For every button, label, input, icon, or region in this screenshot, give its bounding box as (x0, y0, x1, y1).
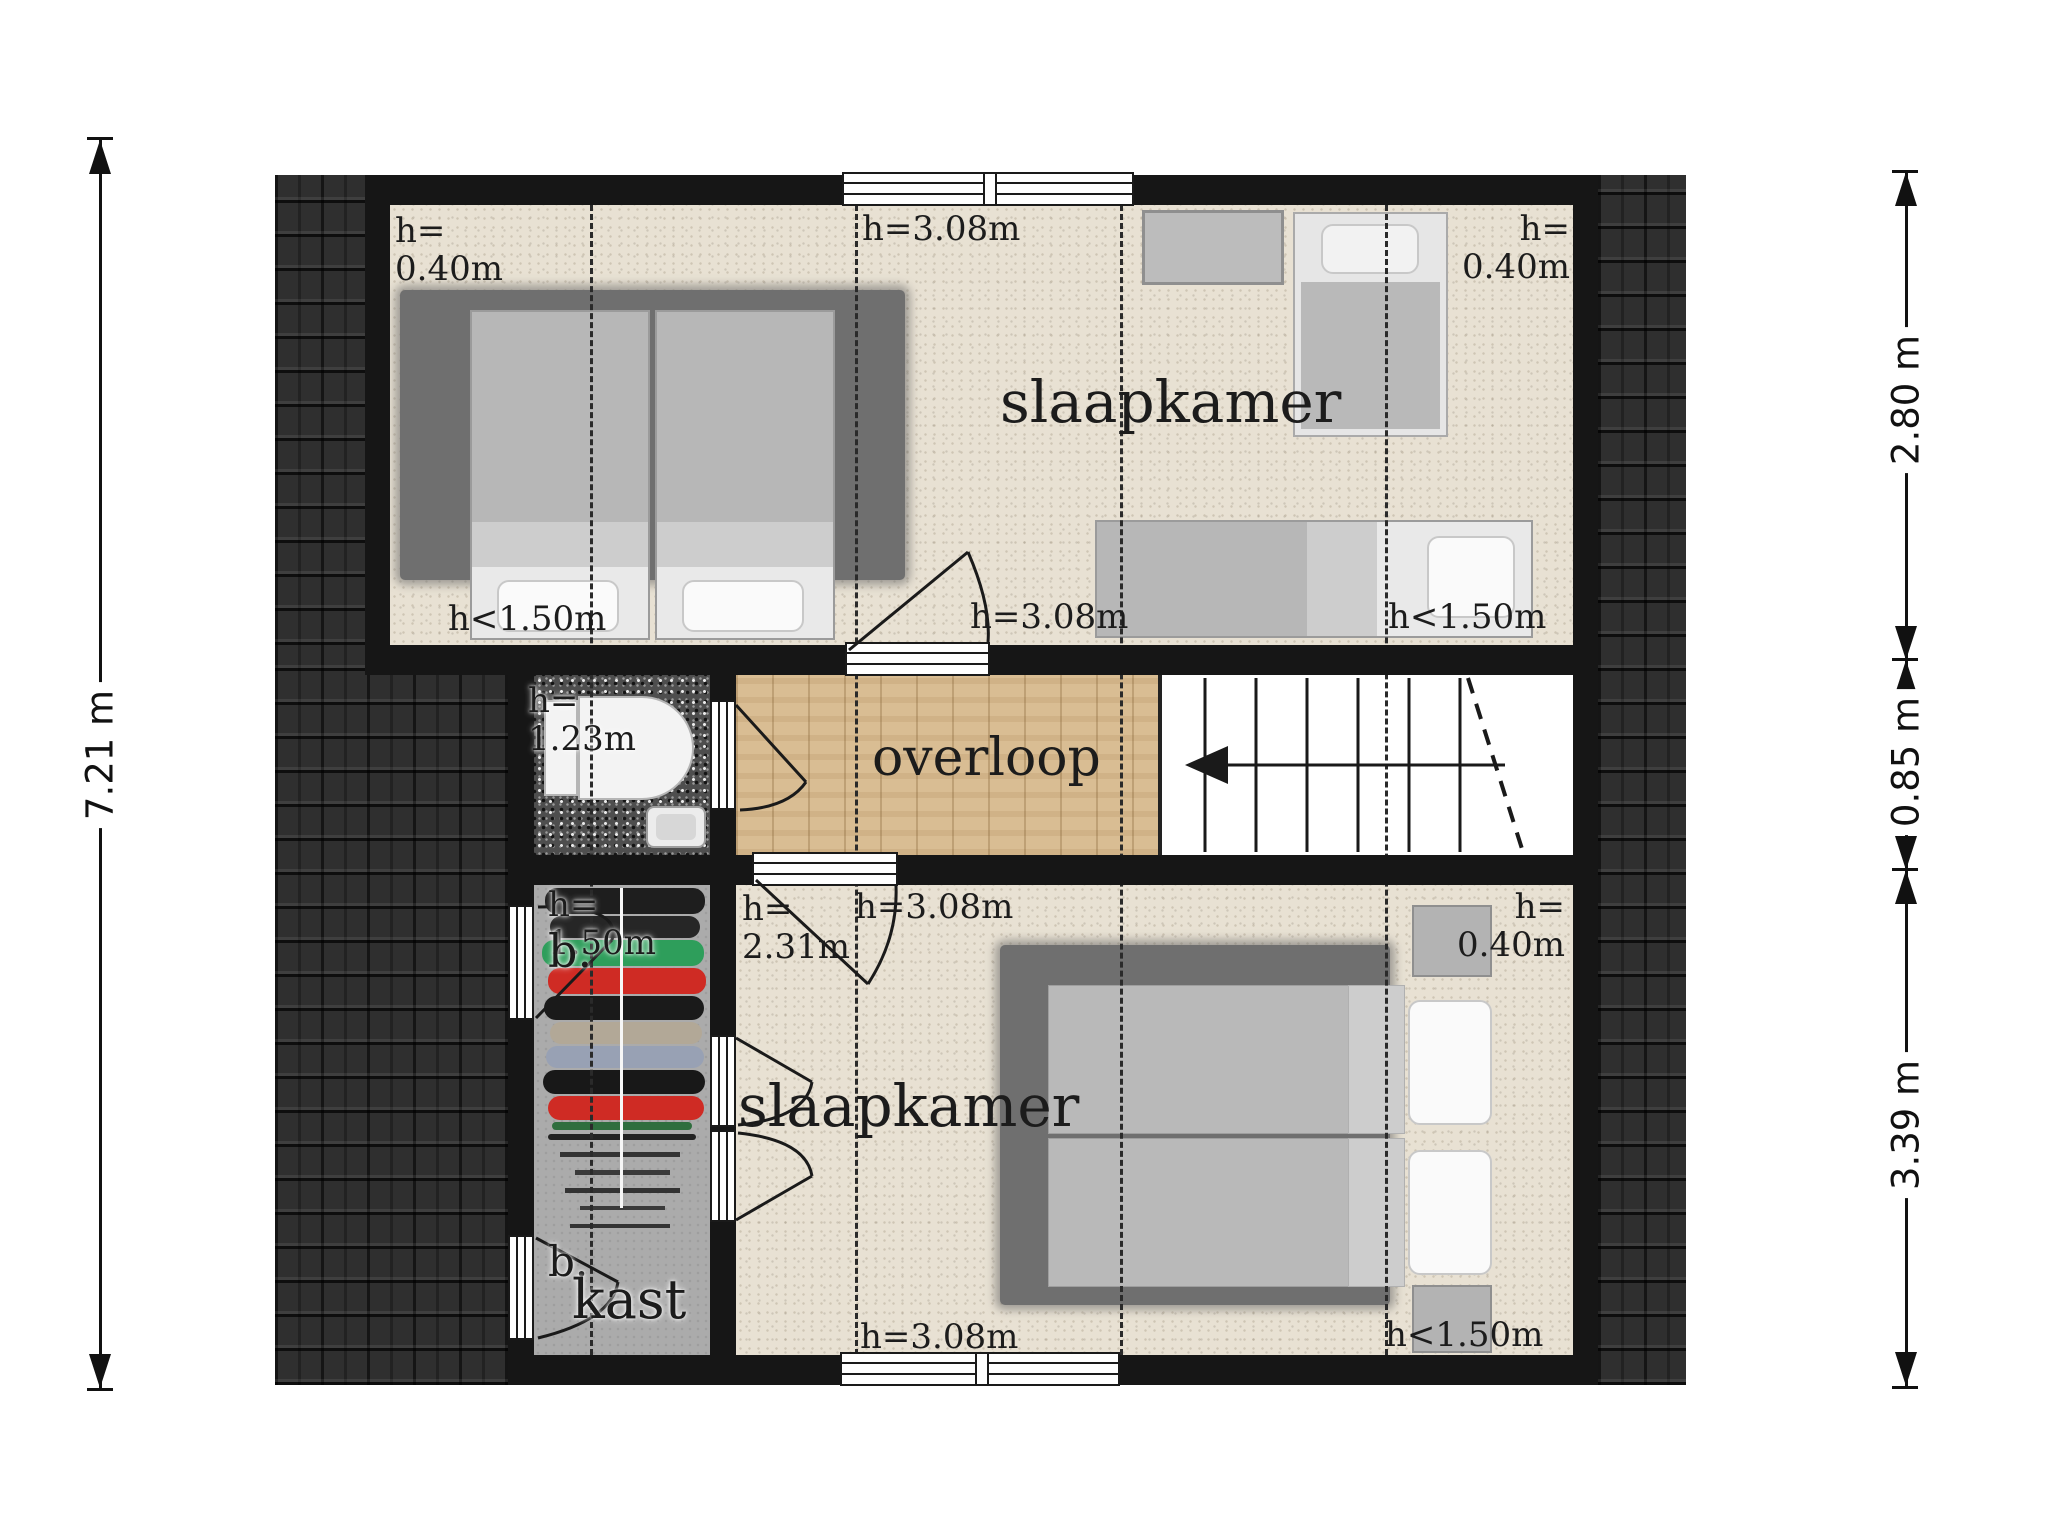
window-top (842, 172, 1134, 206)
single-bed-left (470, 310, 650, 640)
window-mullion (975, 1352, 989, 1386)
height-label-bottom-right-top: h= 0.40m (1435, 888, 1565, 964)
closet-door-left-top (508, 905, 534, 1020)
dimension-label-right-bottom: 3.39 m (1883, 1052, 1930, 1198)
wall-right (1573, 175, 1598, 1385)
dimension-tick (87, 1388, 113, 1391)
desk (1142, 210, 1284, 285)
dimension-arrow-down (1895, 836, 1917, 870)
height-contour-line (855, 205, 858, 1355)
double-bed-duvet-bottom (1348, 1138, 1405, 1287)
stairs-landing-divider (1158, 675, 1162, 855)
pillow (1321, 224, 1419, 274)
room-label-closet: kast (572, 1268, 686, 1331)
sink (646, 806, 706, 848)
height-contour-line (1385, 205, 1388, 1355)
clothes-item (544, 996, 704, 1020)
roof-right (1598, 175, 1686, 1385)
height-label-bottom-right: h<1.50m (1385, 1316, 1543, 1354)
wall-mid-lower (508, 855, 1598, 885)
toilet-door (710, 700, 736, 810)
double-bed-duvet-top (1348, 985, 1405, 1134)
clothes-item (550, 1022, 702, 1044)
room-label-landing: overloop (872, 728, 1101, 788)
height-label-bottom-left: h= 2.31m (742, 890, 850, 966)
dimension-arrow-down (1895, 1352, 1917, 1386)
window-bottom (840, 1352, 1120, 1386)
floor-plan: h= 0.40m h=3.08m h= 0.40m slaapkamer h<1… (0, 0, 2048, 1536)
height-label-bottom-door: h=3.08m (855, 888, 1013, 926)
dimension-arrow-up (89, 140, 111, 174)
closet-door-right-top (710, 1035, 736, 1127)
shelf-line (570, 1224, 670, 1228)
dimension-arrow-up (1895, 870, 1917, 904)
room-label-bedroom-top: slaapkamer (1000, 368, 1341, 436)
closet-door-right-bottom (710, 1130, 736, 1222)
height-label-mid-door: h=3.08m (970, 598, 1128, 636)
room-label-bedroom-bottom: slaapkamer (738, 1072, 1079, 1140)
height-label-top-left: h= 0.40m (395, 212, 503, 288)
height-label-top-center: h=3.08m (862, 210, 1020, 248)
roof-left-bottom (275, 645, 508, 1385)
dimension-arrow-down (1895, 626, 1917, 660)
wall-left (365, 205, 390, 645)
dimension-label-overall: 7.21 m (77, 682, 124, 828)
dimension-arrow-up (1895, 172, 1917, 206)
window-mullion (983, 172, 997, 206)
height-label-mid-right: h<1.50m (1388, 598, 1546, 636)
height-label-bottom-center: h=3.08m (860, 1318, 1018, 1356)
dimension-tick (1892, 1386, 1918, 1389)
pillow (682, 580, 804, 632)
stairs-floor (1162, 675, 1573, 855)
double-bed-mattress-bottom (1048, 1138, 1350, 1287)
pillow (1408, 1000, 1492, 1125)
double-bed-mattress-top (1048, 985, 1350, 1134)
height-label-toilet: h= 1.23m (528, 682, 636, 758)
roof-left-top (275, 175, 365, 645)
dimension-arrow-down (89, 1354, 111, 1388)
height-label-top-right: h= 0.40m (1440, 210, 1570, 286)
dimension-label-right-top: 2.80 m (1883, 327, 1930, 473)
single-bed-right (655, 310, 835, 640)
clothes-item (548, 1096, 704, 1120)
height-contour-line (590, 205, 593, 1355)
height-label-mid-left: h<1.50m (448, 600, 606, 638)
pillow (1408, 1150, 1492, 1275)
clothes-item (546, 1046, 704, 1068)
closet-door-left-bottom (508, 1235, 534, 1340)
landing-bottom-door (752, 852, 898, 886)
clothes-item (543, 1070, 705, 1094)
landing-top-door (845, 642, 990, 676)
closet-door-label-top: b. (548, 926, 592, 978)
dimension-label-right-middle: 0.85 m (1883, 689, 1930, 835)
